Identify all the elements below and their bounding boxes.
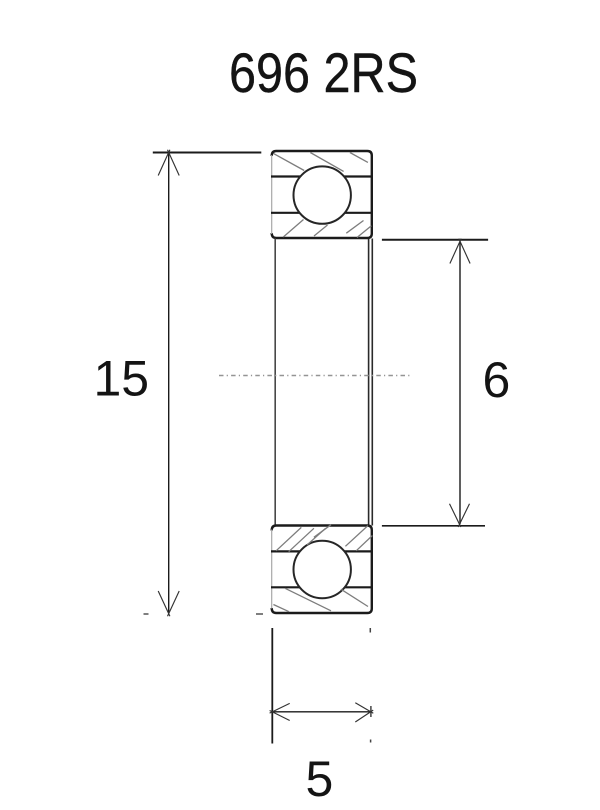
svg-text:6: 6 [483, 352, 511, 408]
svg-text:15: 15 [94, 351, 150, 407]
svg-text:5: 5 [306, 751, 334, 807]
svg-text:696 2RS: 696 2RS [229, 41, 418, 104]
